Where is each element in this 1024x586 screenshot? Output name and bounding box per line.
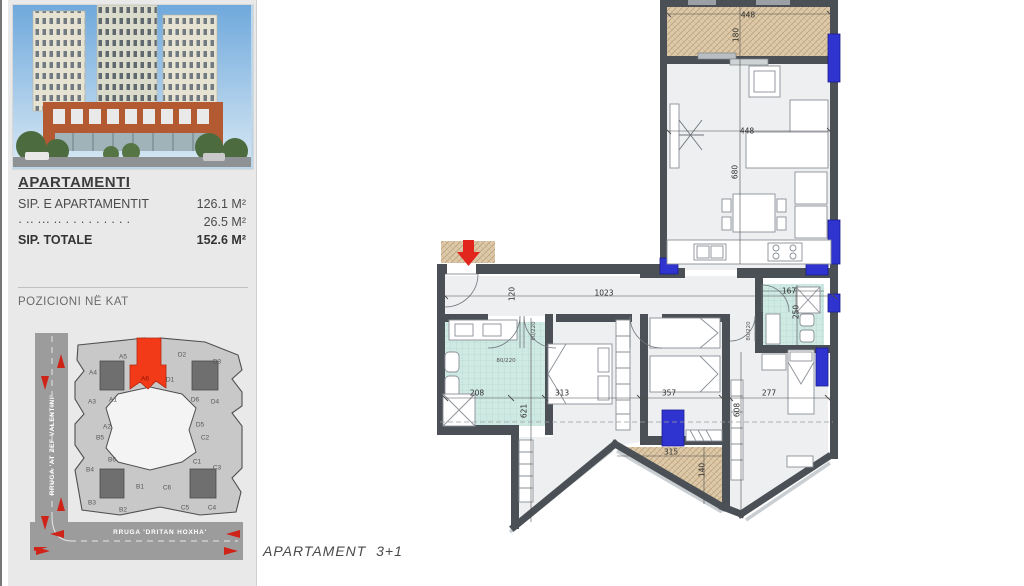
dimension-label: 608 <box>733 403 742 417</box>
keyplan-unit-A1: A1 <box>109 397 117 404</box>
dimension-label: 250 <box>792 305 801 319</box>
toilet <box>445 352 459 372</box>
dimension-label: 208 <box>470 389 484 398</box>
keyplan-unit-D6: D6 <box>191 397 199 404</box>
sofa-horizontal <box>746 132 828 168</box>
dimension-label: 120 <box>508 287 517 301</box>
keyplan-unit-B6: B6 <box>108 457 116 464</box>
keyplan-unit-C5: C5 <box>181 505 189 512</box>
bidet <box>800 330 814 342</box>
dimension-label: 180 <box>732 28 741 42</box>
page: APARTAMENTI SIP. E APARTAMENTIT 126.1 M²… <box>0 0 1024 586</box>
kitchen-cabinet <box>795 206 827 238</box>
keyplan-unit-B5: B5 <box>96 435 104 442</box>
wardrobe <box>616 320 630 430</box>
kitchen-counter <box>667 240 831 264</box>
fridge <box>795 172 827 204</box>
tv-console <box>670 104 679 168</box>
door-size-label: 80/220 <box>496 358 515 364</box>
bidet <box>445 376 459 396</box>
keyplan-unit-D1: D1 <box>166 377 174 384</box>
window-marker <box>816 348 828 386</box>
toilet <box>800 314 814 326</box>
window-marker <box>828 34 840 82</box>
dimension-label: 167 <box>782 287 796 296</box>
dining-table <box>733 194 775 232</box>
single-bed <box>650 318 720 348</box>
dimension-label: 448 <box>740 127 754 136</box>
dimension-label: 1023 <box>594 289 613 298</box>
keyplan-unit-D3: D3 <box>213 359 221 366</box>
dimension-label: 621 <box>520 404 529 418</box>
keyplan-unit-A3: A3 <box>88 399 96 406</box>
door-size-label: 80/220 <box>531 321 537 340</box>
dimension-label: 313 <box>555 389 569 398</box>
dimension-label: 277 <box>762 389 776 398</box>
keyplan-unit-B2: B2 <box>119 507 127 514</box>
dimension-label: 357 <box>662 389 676 398</box>
dimension-label: 448 <box>741 11 755 20</box>
keyplan-unit-B4: B4 <box>86 467 94 474</box>
keyplan-unit-A4: A4 <box>89 370 97 377</box>
dimension-label: 680 <box>731 165 740 179</box>
keyplan-unit-A6: A6 <box>141 376 149 383</box>
shelf <box>787 456 813 467</box>
door-size-label: 80/220 <box>746 321 752 340</box>
door-size-label: 80/220 <box>641 321 647 340</box>
desk <box>762 354 786 370</box>
keyplan-unit-C3: C3 <box>213 465 221 472</box>
dimension-label: 140 <box>698 463 707 477</box>
bathroom-sink <box>766 314 780 344</box>
keyplan-unit-C2: C2 <box>201 435 209 442</box>
single-bed <box>650 356 720 392</box>
keyplan-unit-C4: C4 <box>208 505 216 512</box>
window-marker <box>662 410 684 446</box>
keyplan-unit-B1: B1 <box>136 484 144 491</box>
keyplan-unit-A5: A5 <box>119 354 127 361</box>
dimension-label: 315 <box>664 448 678 457</box>
window-marker <box>828 294 840 312</box>
keyplan-unit-C1: C1 <box>193 459 201 466</box>
keyplan-unit-D2: D2 <box>178 352 186 359</box>
keyplan-unit-D4: D4 <box>211 399 219 406</box>
plan-caption: APARTAMENT 3+1 <box>263 543 403 559</box>
keyplan-unit-C6: C6 <box>163 485 171 492</box>
keyplan-unit-D5: D5 <box>196 422 204 429</box>
keyplan-unit-A2: A2 <box>103 424 111 431</box>
keyplan-unit-B3: B3 <box>88 500 96 507</box>
stove <box>768 243 802 261</box>
